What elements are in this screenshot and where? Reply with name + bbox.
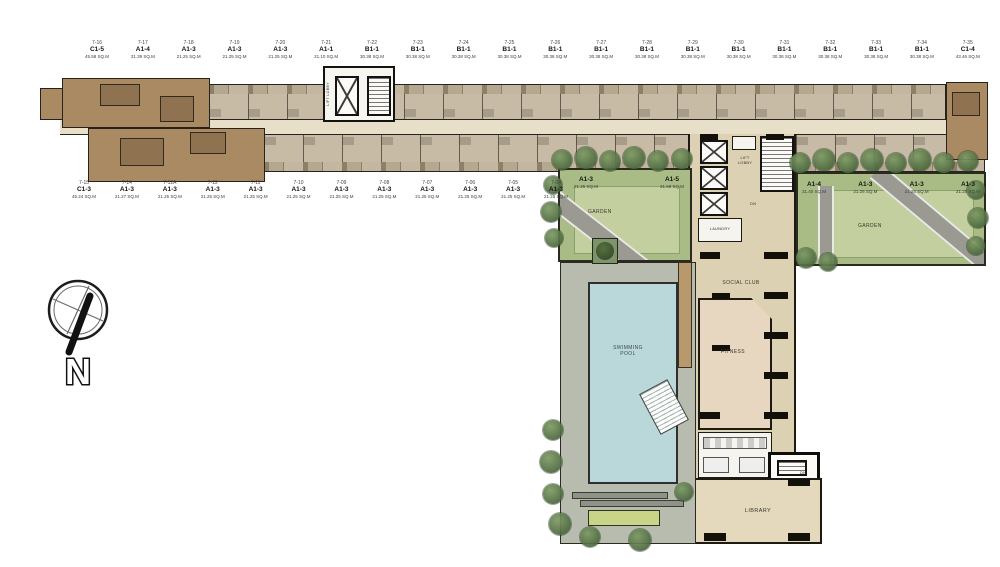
- unit-area: 30.38 SQ.M: [864, 54, 888, 60]
- unit-type: A1-3: [574, 176, 598, 184]
- unit-type: A1-3: [287, 186, 311, 194]
- unit-area: 30.38 SQ.M: [772, 54, 796, 60]
- unit-label: 7-09A1-321.25 SQ.M: [329, 180, 353, 200]
- unit-area: 30.38 SQ.M: [360, 54, 384, 60]
- unit-area: 30.38 SQ.M: [497, 54, 521, 60]
- unit-area: 30.38 SQ.M: [635, 54, 659, 60]
- unit-type: A1-3: [158, 186, 182, 194]
- unit-area: 21.25 SQ.M: [287, 194, 311, 200]
- tree-icon: [790, 153, 810, 173]
- lift-lobby-label: LIFT LOBBY: [732, 155, 758, 165]
- unit-type: A1-3: [329, 186, 353, 194]
- unit-label: 7-22B1-130.38 SQ.M: [360, 40, 384, 60]
- unit-label: 7-24B1-130.38 SQ.M: [452, 40, 476, 60]
- column-tick: [766, 134, 784, 140]
- unit-type: C1-3: [72, 186, 96, 194]
- unit-label: 7-15C1-345.24 SQ.M: [72, 180, 96, 200]
- column-tick: [700, 252, 720, 259]
- unit-label: 7-34B1-130.38 SQ.M: [910, 40, 934, 60]
- laundry-label: LAUNDRY: [700, 226, 740, 231]
- toilet-fixtures-icon: [703, 437, 767, 449]
- column-tick: [700, 134, 718, 140]
- unit-type: A1-5: [660, 176, 684, 184]
- tree-icon: [543, 420, 563, 440]
- room-texture: [209, 109, 945, 117]
- unit-label: 7-28B1-130.38 SQ.M: [635, 40, 659, 60]
- unit-type: B1-1: [818, 46, 842, 54]
- unit-type: B1-1: [452, 46, 476, 54]
- right-garden-unit-labels: A1-431.40 SQ.MA1-321.25 SQ.MA1-321.25 SQ…: [802, 181, 980, 195]
- swimming-pool-label: SWIMMING POOL: [598, 345, 658, 357]
- tree-icon: [909, 149, 931, 171]
- unit-area: 21.25 SQ.M: [329, 194, 353, 200]
- unit-type: B1-1: [727, 46, 751, 54]
- unit-label: 7-10A1-321.25 SQ.M: [287, 180, 311, 200]
- unit-area: 21.25 SQ.M: [905, 189, 929, 195]
- unit-area: 21.25 SQ.M: [574, 184, 598, 190]
- unit-area: 30.38 SQ.M: [727, 54, 751, 60]
- unit-type: A1-3: [268, 46, 292, 54]
- top-unit-labels-row: 7-16C1-545.58 SQ.M7-17A1-431.39 SQ.M7-18…: [85, 40, 980, 60]
- column-tick: [764, 292, 788, 299]
- unit-type: B1-1: [543, 46, 567, 54]
- unit-type: A1-3: [372, 186, 396, 194]
- unit-area: 31.39 SQ.M: [131, 54, 155, 60]
- unit-area: 21.25 SQ.M: [956, 189, 980, 195]
- unit-type: A1-3: [201, 186, 225, 194]
- unit-area: 31.58 SQ.M: [660, 184, 684, 190]
- room-texture: [264, 137, 689, 145]
- tree-icon: [543, 484, 563, 504]
- unit-type: A1-3: [177, 46, 201, 54]
- unit-area: 21.25 SQ.M: [458, 194, 482, 200]
- unit-area: 30.38 SQ.M: [910, 54, 934, 60]
- deck-ledge: [580, 500, 684, 507]
- unit-label: 7-17A1-431.39 SQ.M: [131, 40, 155, 60]
- unit-label: 7-08A1-321.25 SQ.M: [372, 180, 396, 200]
- tree-icon: [549, 513, 571, 535]
- swimming-pool: [588, 282, 678, 484]
- unit-label: A1-321.25 SQ.M: [853, 181, 877, 195]
- unit-type: A1-3: [458, 186, 482, 194]
- balcony-band: [209, 85, 945, 94]
- unit-label: 7-20A1-321.25 SQ.M: [268, 40, 292, 60]
- tree-icon: [623, 147, 645, 169]
- social-club-label: SOCIAL CLUB: [706, 280, 776, 286]
- unit-type: C1-4: [956, 46, 980, 54]
- tree-icon: [813, 149, 835, 171]
- unit-label: 7-16C1-545.58 SQ.M: [85, 40, 109, 60]
- unit-area: 21.25 SQ.M: [158, 194, 182, 200]
- tree-icon: [967, 237, 985, 255]
- unit-type: A1-1: [314, 46, 338, 54]
- bottom-unit-labels-row: 7-15C1-345.24 SQ.M7-14A1-321.27 SQ.M7-12…: [72, 180, 568, 200]
- unit-type: A1-3: [956, 181, 980, 189]
- deck-ledge: [572, 492, 668, 499]
- column-tick: [704, 533, 726, 541]
- unit-label: 7-04A1-321.25 SQ.M: [544, 180, 568, 200]
- stair-icon: [760, 136, 794, 192]
- column-tick: [700, 412, 720, 419]
- floor-plan-canvas: LIFT LOBBY LIFT LOBBY DN LAUNDRY SOCIAL …: [0, 0, 1000, 567]
- unit-area: 31.40 SQ.M: [802, 189, 826, 195]
- unit-area: 21.10 SQ.M: [314, 54, 338, 60]
- corner-unit-c1-3: [88, 128, 265, 182]
- unit-area: 30.38 SQ.M: [543, 54, 567, 60]
- unit-label: 7-32B1-130.38 SQ.M: [818, 40, 842, 60]
- elevator-shaft-icon: [700, 140, 728, 164]
- service-room: [732, 136, 756, 150]
- column-tick: [788, 479, 810, 486]
- fitness-room: [698, 298, 772, 430]
- unit-label: 7-06A1-321.25 SQ.M: [458, 180, 482, 200]
- top-units-strip: [208, 84, 946, 120]
- stair-icon: [367, 76, 391, 116]
- tree-icon: [648, 151, 668, 171]
- tree-icon: [886, 153, 906, 173]
- unit-label: 7-05A1-321.25 SQ.M: [501, 180, 525, 200]
- unit-area: 43.46 SQ.M: [956, 54, 980, 60]
- tree-icon: [600, 151, 620, 171]
- unit-label: 7-30B1-130.38 SQ.M: [727, 40, 751, 60]
- unit-area: 21.25 SQ.M: [244, 194, 268, 200]
- tree-icon: [540, 451, 562, 473]
- unit-type: A1-4: [131, 46, 155, 54]
- unit-type: A1-3: [853, 181, 877, 189]
- tree-icon: [541, 202, 561, 222]
- dn-lower-label: DN: [800, 470, 806, 475]
- wing-lift-lobby-label: LIFT LOBBY: [326, 82, 330, 106]
- library-label: LIBRARY: [728, 508, 788, 514]
- unit-label: A1-431.40 SQ.M: [802, 181, 826, 195]
- garden-left-label: GARDEN: [588, 209, 612, 215]
- tree-icon: [934, 153, 954, 173]
- unit-area: 21.25 SQ.M: [415, 194, 439, 200]
- unit-area: 21.25 SQ.M: [222, 54, 246, 60]
- deck-wall: [678, 262, 692, 368]
- pool-line2: POOL: [620, 351, 636, 357]
- unit-label: 7-23B1-130.38 SQ.M: [406, 40, 430, 60]
- unit-area: 21.25 SQ.M: [268, 54, 292, 60]
- tree-icon: [629, 529, 651, 551]
- unit-type: B1-1: [406, 46, 430, 54]
- unit-area: 30.38 SQ.M: [818, 54, 842, 60]
- unit-type: A1-3: [501, 186, 525, 194]
- unit-type: A1-3: [905, 181, 929, 189]
- unit-area: 30.38 SQ.M: [452, 54, 476, 60]
- column-tick: [764, 372, 788, 379]
- unit-label: 7-21A1-121.10 SQ.M: [314, 40, 338, 60]
- unit-type: B1-1: [497, 46, 521, 54]
- unit-label: 7-35C1-443.46 SQ.M: [956, 40, 980, 60]
- corner-unit-detail: [100, 84, 140, 106]
- unit-label: 7-07A1-321.25 SQ.M: [415, 180, 439, 200]
- column-tick: [764, 252, 788, 259]
- unit-type: B1-1: [681, 46, 705, 54]
- unit-label: 7-14A1-321.27 SQ.M: [115, 180, 139, 200]
- corner-unit-detail: [160, 96, 194, 122]
- unit-type: B1-1: [910, 46, 934, 54]
- unit-area: 21.25 SQ.M: [501, 194, 525, 200]
- lift-lobby-line2: LOBBY: [738, 160, 752, 165]
- tree-icon: [552, 150, 572, 170]
- column-tick: [712, 293, 730, 299]
- tree-icon: [675, 483, 693, 501]
- tree-icon: [958, 151, 978, 171]
- unit-type: A1-3: [222, 46, 246, 54]
- tree-icon: [575, 147, 597, 169]
- unit-area: 21.25 SQ.M: [372, 194, 396, 200]
- tree-icon: [545, 229, 563, 247]
- tree-icon: [580, 527, 600, 547]
- planter: [592, 238, 618, 264]
- unit-label: A1-321.25 SQ.M: [905, 181, 929, 195]
- unit-label: 7-31B1-130.38 SQ.M: [772, 40, 796, 60]
- unit-label: 7-27B1-130.38 SQ.M: [589, 40, 613, 60]
- unit-area: 21.25 SQ.M: [544, 194, 568, 200]
- tree-icon: [838, 153, 858, 173]
- bush-icon: [596, 242, 614, 260]
- unit-area: 21.27 SQ.M: [115, 194, 139, 200]
- unit-type: A1-3: [115, 186, 139, 194]
- corner-unit-detail: [120, 138, 164, 166]
- unit-label: A1-321.25 SQ.M: [956, 181, 980, 195]
- column-tick: [764, 412, 788, 419]
- column-tick: [788, 533, 810, 541]
- unit-label: 7-33B1-130.38 SQ.M: [864, 40, 888, 60]
- unit-area: 21.25 SQ.M: [177, 54, 201, 60]
- unit-label: 7-25B1-130.38 SQ.M: [497, 40, 521, 60]
- planter-strip: [588, 510, 660, 526]
- elevator-shaft-icon: [700, 192, 728, 216]
- unit-type: C1-5: [85, 46, 109, 54]
- toilet-stall: [703, 457, 729, 473]
- dn-upper-label: DN: [750, 201, 756, 206]
- unit-type: B1-1: [589, 46, 613, 54]
- unit-label: A1-531.58 SQ.M: [660, 176, 684, 190]
- unit-label: 7-26B1-130.38 SQ.M: [543, 40, 567, 60]
- corner-unit-detail: [952, 92, 980, 116]
- unit-label: 7-18A1-321.25 SQ.M: [177, 40, 201, 60]
- unit-type: A1-3: [544, 186, 568, 194]
- unit-label: 7-11A1-321.25 SQ.M: [244, 180, 268, 200]
- elevator-shaft-icon: [700, 166, 728, 190]
- tree-icon: [796, 248, 816, 268]
- unit-label: 7-12AA1-321.25 SQ.M: [158, 180, 182, 200]
- unit-type: B1-1: [864, 46, 888, 54]
- north-compass: N: [42, 276, 114, 392]
- corner-unit-detail: [190, 132, 226, 154]
- unit-label: 7-19A1-321.25 SQ.M: [222, 40, 246, 60]
- toilet-stall: [739, 457, 765, 473]
- wing-lift-core: LIFT LOBBY: [323, 66, 395, 122]
- unit-type: B1-1: [360, 46, 384, 54]
- fitness-label: FITNESS: [702, 349, 764, 355]
- unit-type: A1-4: [802, 181, 826, 189]
- tree-icon: [672, 149, 692, 169]
- unit-area: 21.25 SQ.M: [853, 189, 877, 195]
- unit-area: 45.58 SQ.M: [85, 54, 109, 60]
- unit-type: A1-3: [244, 186, 268, 194]
- garden-right-label: GARDEN: [858, 223, 882, 229]
- unit-type: A1-3: [415, 186, 439, 194]
- north-label: N: [65, 351, 91, 392]
- unit-type: B1-1: [772, 46, 796, 54]
- left-garden-unit-labels: A1-321.25 SQ.MA1-531.58 SQ.M: [574, 176, 684, 190]
- unit-label: 7-29B1-130.38 SQ.M: [681, 40, 705, 60]
- tree-icon: [819, 253, 837, 271]
- tree-icon: [861, 149, 883, 171]
- unit-label: 7-12A1-321.25 SQ.M: [201, 180, 225, 200]
- column-tick: [764, 332, 788, 339]
- unit-label: A1-321.25 SQ.M: [574, 176, 598, 190]
- unit-area: 30.38 SQ.M: [589, 54, 613, 60]
- unit-area: 30.38 SQ.M: [681, 54, 705, 60]
- restroom-block: [698, 432, 772, 478]
- unit-area: 30.38 SQ.M: [406, 54, 430, 60]
- unit-area: 45.24 SQ.M: [72, 194, 96, 200]
- tree-icon: [968, 208, 988, 228]
- unit-area: 21.25 SQ.M: [201, 194, 225, 200]
- elevator-shaft-icon: [335, 76, 359, 116]
- unit-type: B1-1: [635, 46, 659, 54]
